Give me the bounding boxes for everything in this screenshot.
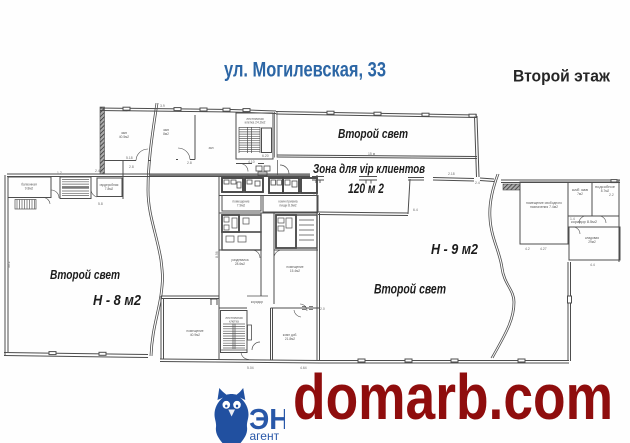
svg-text:5.18: 5.18 [126,156,133,160]
svg-text:2.8: 2.8 [187,161,192,165]
svg-text:клетка 24.2м2: клетка 24.2м2 [245,121,266,125]
svg-text:28.6м2: 28.6м2 [235,262,245,266]
svg-text:36.2: 36.2 [7,261,11,268]
svg-text:коридор: коридор [251,300,263,304]
svg-text:агент: агент [250,429,280,443]
svg-text:Н - 8 м2: Н - 8 м2 [93,292,142,309]
svg-text:120 м 2: 120 м 2 [348,180,384,196]
svg-text:6.20: 6.20 [262,154,269,158]
svg-text:4.4: 4.4 [590,263,595,267]
svg-text:21.8м2: 21.8м2 [285,337,295,341]
svg-text:4.27: 4.27 [540,247,547,251]
svg-text:8.56: 8.56 [215,251,219,258]
svg-text:8м2: 8м2 [163,132,169,136]
svg-text:40.5м2: 40.5м2 [119,135,129,139]
svg-text:domarb.com: domarb.com [293,361,613,433]
svg-text:назначения 7.4м2: назначения 7.4м2 [530,205,558,209]
svg-text:6.4: 6.4 [413,208,418,212]
svg-text:29м2: 29м2 [588,240,596,244]
svg-text:7.8м2: 7.8м2 [105,187,114,191]
svg-text:Второй свет: Второй свет [50,267,120,282]
svg-text:5.8: 5.8 [98,202,103,206]
svg-text:5.04: 5.04 [247,366,254,370]
svg-text:7м2: 7м2 [577,192,583,196]
svg-text:зал: зал [208,146,213,150]
svg-text:Второй этаж: Второй этаж [513,68,610,86]
svg-text:15.4м2: 15.4м2 [290,269,300,273]
svg-text:9.8м2: 9.8м2 [25,187,34,191]
svg-text:2.4: 2.4 [475,181,480,185]
svg-text:2.18: 2.18 [448,172,455,176]
svg-text:Зона для vip клиентов: Зона для vip клиентов [313,162,425,176]
svg-text:2.0: 2.0 [320,307,325,311]
svg-text:1.2: 1.2 [57,171,62,175]
svg-text:клетка: клетка [229,320,239,324]
svg-text:ул. Могилевская, 33: ул. Могилевская, 33 [224,59,386,82]
svg-text:40.9м2: 40.9м2 [190,333,200,337]
svg-text:пищи 8.9м2: пищи 8.9м2 [279,204,296,208]
svg-text:Второй свет: Второй свет [374,282,446,297]
svg-text:15 м: 15 м [368,152,376,156]
svg-text:коридор 8.5м2: коридор 8.5м2 [571,220,597,224]
svg-text:1.9: 1.9 [313,193,318,197]
svg-text:4.10: 4.10 [248,160,255,164]
svg-text:Второй свет: Второй свет [338,126,408,141]
svg-text:2.47: 2.47 [95,169,102,173]
svg-text:2.2: 2.2 [609,193,614,197]
svg-text:3.9: 3.9 [160,104,165,108]
svg-text:1.4: 1.4 [570,217,575,221]
svg-text:Н - 9 м2: Н - 9 м2 [431,241,479,258]
svg-text:7.9м2: 7.9м2 [237,204,246,208]
svg-text:4.2: 4.2 [525,247,530,251]
svg-text:2.8: 2.8 [129,165,134,169]
